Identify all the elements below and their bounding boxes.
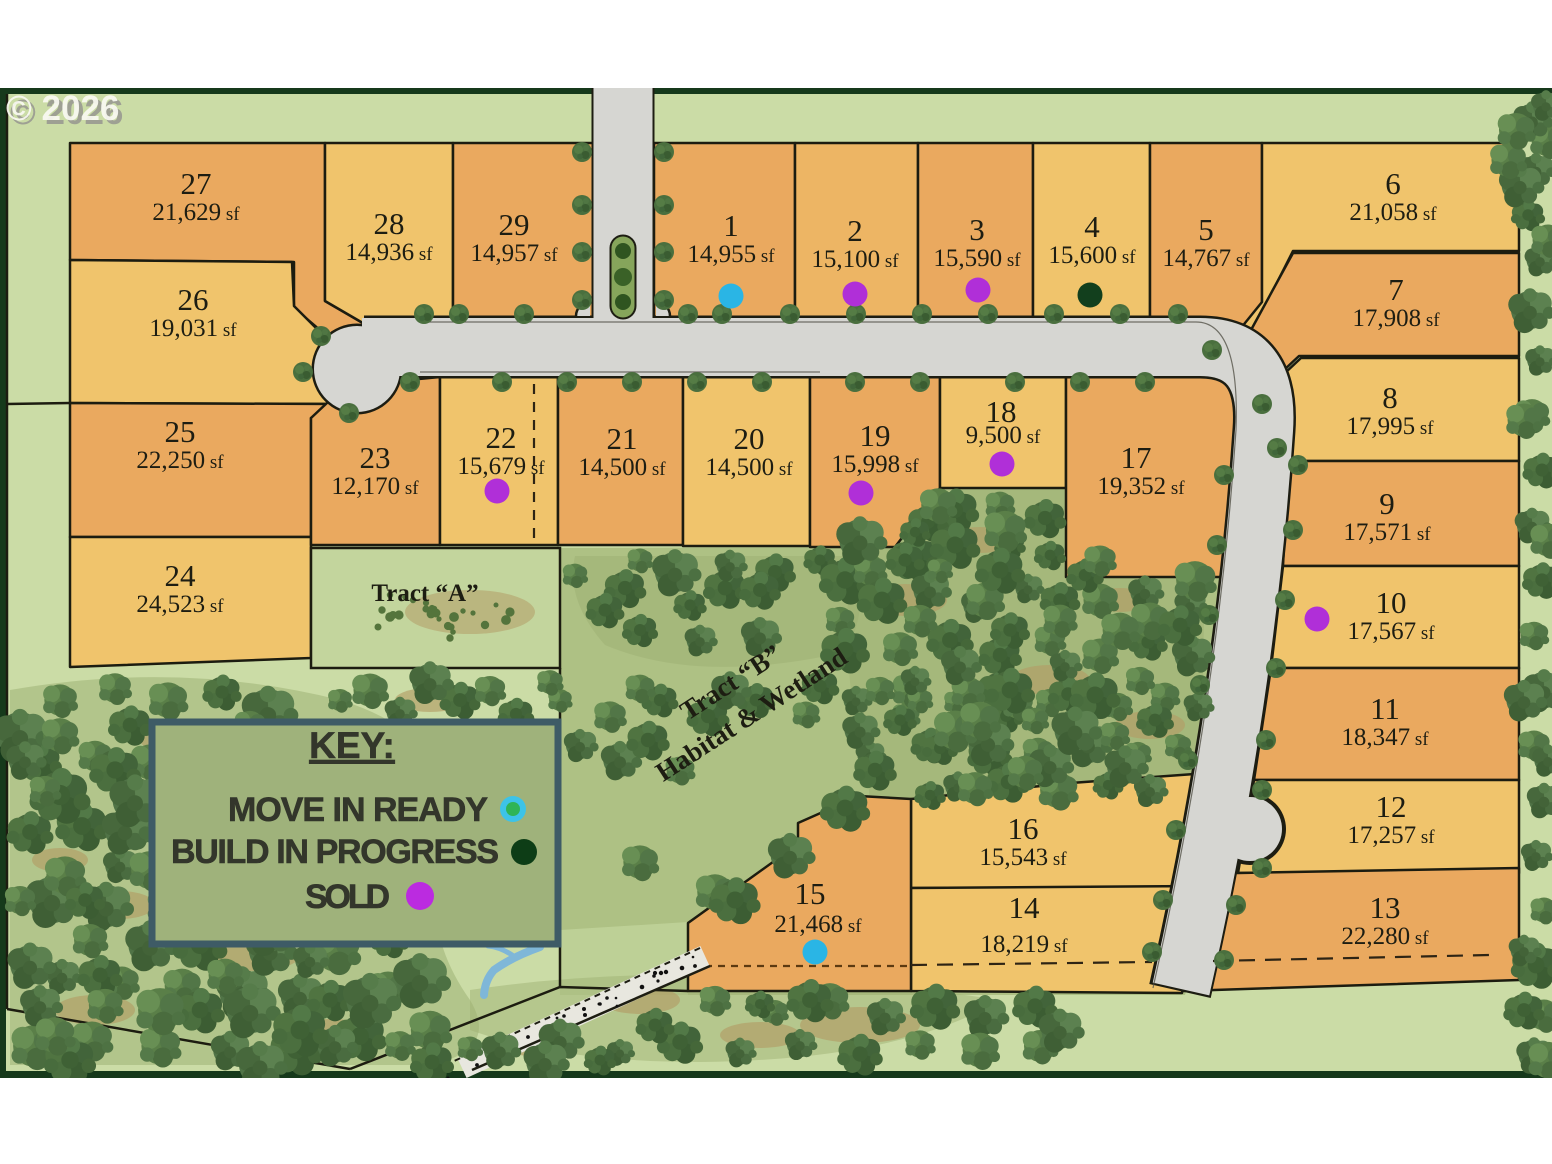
svg-text:17,571 sf: 17,571 sf xyxy=(1343,519,1431,546)
svg-text:17: 17 xyxy=(1121,440,1152,475)
svg-text:8: 8 xyxy=(1382,380,1398,415)
svg-text:19,352 sf: 19,352 sf xyxy=(1097,473,1185,500)
svg-text:14,767 sf: 14,767 sf xyxy=(1162,245,1250,272)
svg-text:25: 25 xyxy=(165,414,196,449)
svg-text:15,998 sf: 15,998 sf xyxy=(831,451,919,478)
svg-text:14,955 sf: 14,955 sf xyxy=(687,241,775,268)
svg-text:28: 28 xyxy=(374,206,405,241)
svg-text:21,468 sf: 21,468 sf xyxy=(774,911,862,938)
svg-text:11: 11 xyxy=(1370,691,1400,726)
svg-text:21,629 sf: 21,629 sf xyxy=(152,199,240,226)
svg-text:2: 2 xyxy=(847,213,863,248)
svg-text:17,257 sf: 17,257 sf xyxy=(1347,822,1435,849)
svg-text:14,500 sf: 14,500 sf xyxy=(705,454,793,481)
svg-text:15: 15 xyxy=(795,876,826,911)
svg-text:BUILD IN PROGRESS: BUILD IN PROGRESS xyxy=(171,833,499,871)
svg-text:20: 20 xyxy=(734,421,765,456)
svg-text:18,347 sf: 18,347 sf xyxy=(1341,724,1429,751)
svg-text:MOVE IN READY: MOVE IN READY xyxy=(228,791,488,829)
svg-text:22,280 sf: 22,280 sf xyxy=(1341,923,1429,950)
svg-text:SOLD: SOLD xyxy=(305,878,390,916)
svg-text:12,170 sf: 12,170 sf xyxy=(331,473,419,500)
svg-text:16: 16 xyxy=(1008,811,1039,846)
svg-text:KEY:: KEY: xyxy=(309,725,395,766)
svg-text:9,500 sf: 9,500 sf xyxy=(966,422,1041,449)
svg-text:14,957 sf: 14,957 sf xyxy=(470,240,558,267)
svg-text:Tract “A”: Tract “A” xyxy=(371,580,478,607)
svg-text:26: 26 xyxy=(178,282,209,317)
svg-text:14: 14 xyxy=(1009,890,1041,925)
svg-text:22: 22 xyxy=(486,420,517,455)
svg-text:5: 5 xyxy=(1198,212,1214,247)
svg-text:17,567 sf: 17,567 sf xyxy=(1347,618,1435,645)
svg-text:19: 19 xyxy=(860,418,891,453)
svg-text:21: 21 xyxy=(607,421,638,456)
svg-text:17,908 sf: 17,908 sf xyxy=(1352,305,1440,332)
svg-text:12: 12 xyxy=(1376,789,1407,824)
svg-text:14,500 sf: 14,500 sf xyxy=(578,454,666,481)
svg-text:7: 7 xyxy=(1388,272,1404,307)
svg-text:21,058 sf: 21,058 sf xyxy=(1349,199,1437,226)
svg-text:15,600 sf: 15,600 sf xyxy=(1048,242,1136,269)
svg-text:24: 24 xyxy=(165,558,197,593)
svg-text:10: 10 xyxy=(1376,585,1407,620)
svg-text:19,031 sf: 19,031 sf xyxy=(149,315,237,342)
svg-text:17,995 sf: 17,995 sf xyxy=(1346,413,1434,440)
svg-text:27: 27 xyxy=(181,166,212,201)
svg-text:18,219 sf: 18,219 sf xyxy=(980,931,1068,958)
svg-text:15,679 sf: 15,679 sf xyxy=(457,453,545,480)
svg-text:14,936 sf: 14,936 sf xyxy=(345,239,433,266)
svg-text:29: 29 xyxy=(499,207,530,242)
svg-text:15,590 sf: 15,590 sf xyxy=(933,245,1021,272)
svg-text:4: 4 xyxy=(1084,209,1100,244)
svg-text:13: 13 xyxy=(1370,890,1401,925)
svg-text:22,250 sf: 22,250 sf xyxy=(136,447,224,474)
svg-text:3: 3 xyxy=(969,212,985,247)
svg-text:6: 6 xyxy=(1385,166,1401,201)
svg-text:9: 9 xyxy=(1379,486,1395,521)
svg-text:24,523 sf: 24,523 sf xyxy=(136,591,224,618)
svg-text:1: 1 xyxy=(723,208,739,243)
svg-text:15,100 sf: 15,100 sf xyxy=(811,246,899,273)
svg-text:© 2026: © 2026 xyxy=(6,89,119,128)
svg-text:23: 23 xyxy=(360,440,391,475)
svg-text:15,543 sf: 15,543 sf xyxy=(979,844,1067,871)
